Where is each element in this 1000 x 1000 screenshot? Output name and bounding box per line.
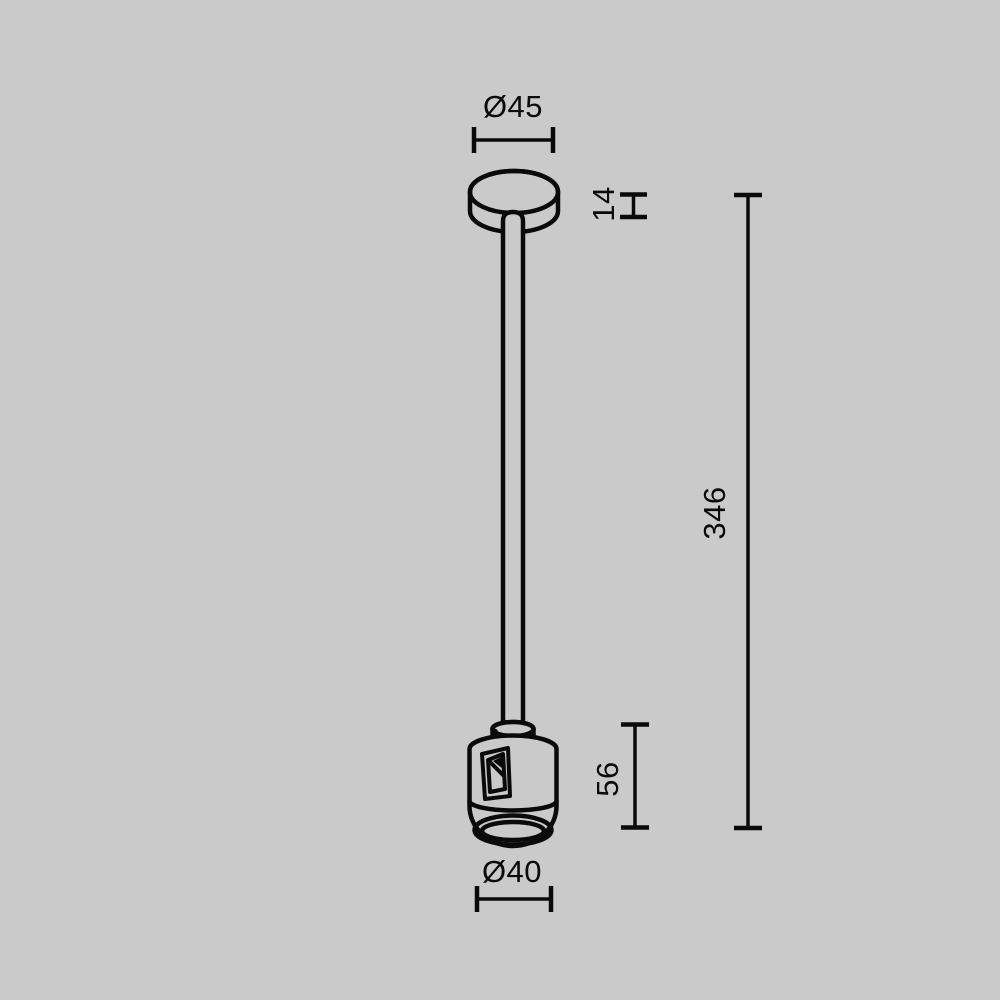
dimension-overall-length: 346 — [697, 195, 762, 828]
technical-drawing: Ø45 14 346 — [0, 0, 1000, 1000]
track-connector-body — [470, 736, 557, 847]
suspension-rod — [503, 212, 523, 726]
dimension-bottom-diameter: Ø40 — [477, 854, 551, 912]
dimension-label-bottom-diameter: Ø40 — [482, 854, 542, 889]
collar-set-screw — [492, 729, 498, 735]
dimension-top-diameter: Ø45 — [474, 89, 553, 153]
dimension-label-overall-length: 346 — [697, 486, 732, 539]
dimension-connector-height: 56 — [590, 725, 649, 828]
drawing-canvas: Ø45 14 346 — [0, 0, 1000, 1000]
dimension-label-canopy-height: 14 — [586, 186, 621, 221]
dimension-label-connector-height: 56 — [590, 761, 625, 796]
dimension-label-top-diameter: Ø45 — [483, 89, 543, 124]
dimension-canopy-height: 14 — [586, 186, 647, 221]
